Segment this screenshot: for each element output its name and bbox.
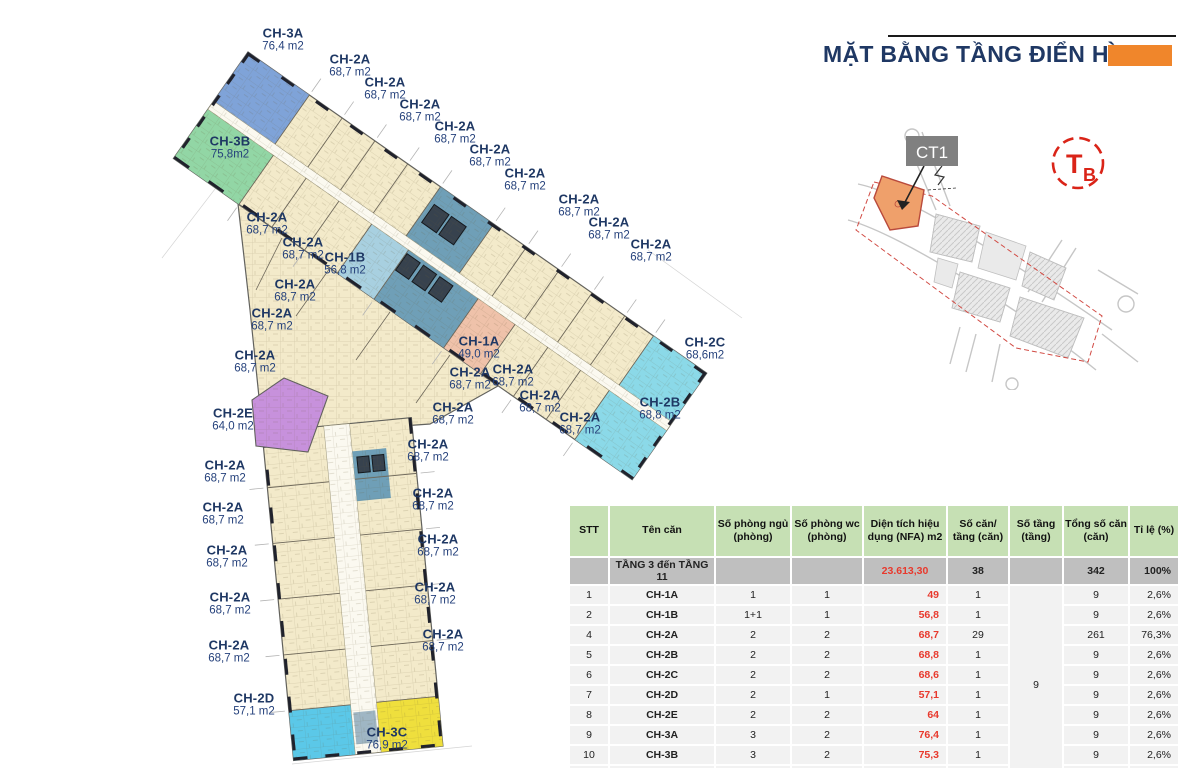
table-cell: 2,6% [1130, 646, 1178, 664]
table-cell: 9 [1064, 746, 1128, 764]
table-row-ch-1a: 1CH-1A11491992,6% [570, 586, 1178, 604]
table-cell: 1 [948, 726, 1008, 744]
table-cell: 2 [716, 646, 790, 664]
table-cell: 56,8 [864, 606, 946, 624]
table-cell: 2 [792, 746, 862, 764]
column-header-5: Số căn/ tầng (căn) [948, 506, 1008, 556]
table-cell: CH-1B [610, 606, 714, 624]
table-cell: TẦNG 3 đến TẦNG 11 [610, 558, 714, 584]
table-cell: CH-3A [610, 726, 714, 744]
table-cell: 49 [864, 586, 946, 604]
table-cell: 2 [792, 706, 862, 724]
table-cell: 9 [1064, 726, 1128, 744]
table-row-ch-2c: 6CH-2C2268,6192,6% [570, 666, 1178, 684]
table-cell [1010, 558, 1062, 584]
table-cell: 9 [1064, 606, 1128, 624]
table-cell: 68,7 [864, 626, 946, 644]
parcels [930, 214, 1084, 358]
page-title: MẶT BẰNG TẦNG ĐIỂN HÌNH [823, 41, 1149, 68]
table-cell: CH-2E [610, 706, 714, 724]
table-cell: 2,6% [1130, 746, 1178, 764]
table-cell: 2 [716, 706, 790, 724]
table-cell: CH-3B [610, 746, 714, 764]
table-cell: 1 [716, 586, 790, 604]
table-cell: 9 [1064, 586, 1128, 604]
table-cell: 2 [792, 666, 862, 684]
table-row-ch-2a: 4CH-2A2268,72926176,3% [570, 626, 1178, 644]
table-cell: 1 [792, 586, 862, 604]
table-cell: 1 [948, 746, 1008, 764]
unit-mix-table: STTTên cănSố phòng ngủ (phòng)Số phòng w… [568, 504, 1180, 768]
column-header-8: Tỉ lệ (%) [1130, 506, 1178, 556]
table-cell: 9 [1064, 646, 1128, 664]
table-cell: 8 [570, 706, 608, 724]
column-header-1: Tên căn [610, 506, 714, 556]
table-cell: CH-2A [610, 626, 714, 644]
title-orange-swatch [1108, 45, 1172, 66]
table-cell: 68,6 [864, 666, 946, 684]
column-header-6: Số tầng (tầng) [1010, 506, 1062, 556]
column-header-7: Tổng số căn (căn) [1064, 506, 1128, 556]
table-cell: CH-2D [610, 686, 714, 704]
table-cell: 2,6% [1130, 706, 1178, 724]
table-cell: 29 [948, 626, 1008, 644]
table-cell: 342 [1064, 558, 1128, 584]
table-cell: 9 [1064, 706, 1128, 724]
table-cell: 76,4 [864, 726, 946, 744]
table-cell: 1 [948, 606, 1008, 624]
table-cell: 1 [792, 606, 862, 624]
table-cell [716, 558, 790, 584]
table-cell: 7 [570, 686, 608, 704]
table-cell: 57,1 [864, 686, 946, 704]
table-cell: 2,6% [1130, 726, 1178, 744]
table-cell: 9 [570, 726, 608, 744]
table-cell: 1 [948, 586, 1008, 604]
table-cell: 2 [792, 626, 862, 644]
column-header-3: Số phòng wc (phòng) [792, 506, 862, 556]
table-cell: 3 [716, 746, 790, 764]
merged-floors-cell: 9 [1010, 586, 1062, 768]
table-cell: 1 [948, 646, 1008, 664]
table-cell: 9 [1064, 666, 1128, 684]
table-cell: 2,6% [1130, 686, 1178, 704]
table-cell: 100% [1130, 558, 1178, 584]
table-cell: 10 [570, 746, 608, 764]
table-cell: 5 [570, 646, 608, 664]
table-cell: 38 [948, 558, 1008, 584]
table-cell: 64 [864, 706, 946, 724]
table-cell: 1 [948, 686, 1008, 704]
table-cell: 9 [1064, 686, 1128, 704]
table-cell: 6 [570, 666, 608, 684]
table-cell: 1 [570, 586, 608, 604]
table-cell: 1 [948, 706, 1008, 724]
table-cell: 2,6% [1130, 586, 1178, 604]
table-row-ch-3b: 10CH-3B3275,3192,6% [570, 746, 1178, 764]
table-cell: 2 [570, 606, 608, 624]
table-row-ch-2e: 8CH-2E2264192,6% [570, 706, 1178, 724]
title-rule [888, 35, 1176, 37]
compass-letter-t: T [1066, 149, 1083, 179]
table-cell [570, 558, 608, 584]
table-cell [792, 558, 862, 584]
table-row-ch-2d: 7CH-2D2157,1192,6% [570, 686, 1178, 704]
table-cell: 2 [792, 646, 862, 664]
slide: CH-3A76,4 m2CH-2A68,7 m2CH-2A68,7 m2CH-2… [0, 0, 1188, 768]
table-cell: 68,8 [864, 646, 946, 664]
table-header-row: STTTên cănSố phòng ngủ (phòng)Số phòng w… [570, 506, 1178, 556]
table-row-ch-1b: 2CH-1B1+1156,8192,6% [570, 606, 1178, 624]
column-header-2: Số phòng ngủ (phòng) [716, 506, 790, 556]
table-cell: 3 [716, 726, 790, 744]
table-cell: 1 [792, 686, 862, 704]
table-row-ch-3a: 9CH-3A3276,4192,6% [570, 726, 1178, 744]
table-cell: 76,3% [1130, 626, 1178, 644]
table-cell: 261 [1064, 626, 1128, 644]
table-cell: 1 [948, 666, 1008, 684]
table-cell: 1+1 [716, 606, 790, 624]
table-cell: CH-2C [610, 666, 714, 684]
column-header-4: Diện tích hiệu dụng (NFA) m2 [864, 506, 946, 556]
table-cell: 2 [716, 626, 790, 644]
table-cell: 2,6% [1130, 666, 1178, 684]
table-row-ch-2b: 5CH-2B2268,8192,6% [570, 646, 1178, 664]
table-cell: 2 [792, 726, 862, 744]
table-summary-row: TẦNG 3 đến TẦNG 1123.613,3038342100% [570, 558, 1178, 584]
compass-letter-b: B [1083, 165, 1096, 185]
ct1-label: CT1 [916, 143, 948, 162]
building-wing-vertical [244, 416, 461, 762]
table-cell: 2,6% [1130, 606, 1178, 624]
table-cell: 4 [570, 626, 608, 644]
column-header-0: STT [570, 506, 608, 556]
table-cell: CH-2B [610, 646, 714, 664]
table-cell: 2 [716, 666, 790, 684]
compass: T B [1046, 132, 1110, 196]
table-cell: CH-1A [610, 586, 714, 604]
table-cell: 75,3 [864, 746, 946, 764]
table-cell: 2 [716, 686, 790, 704]
table-cell: 23.613,30 [864, 558, 946, 584]
